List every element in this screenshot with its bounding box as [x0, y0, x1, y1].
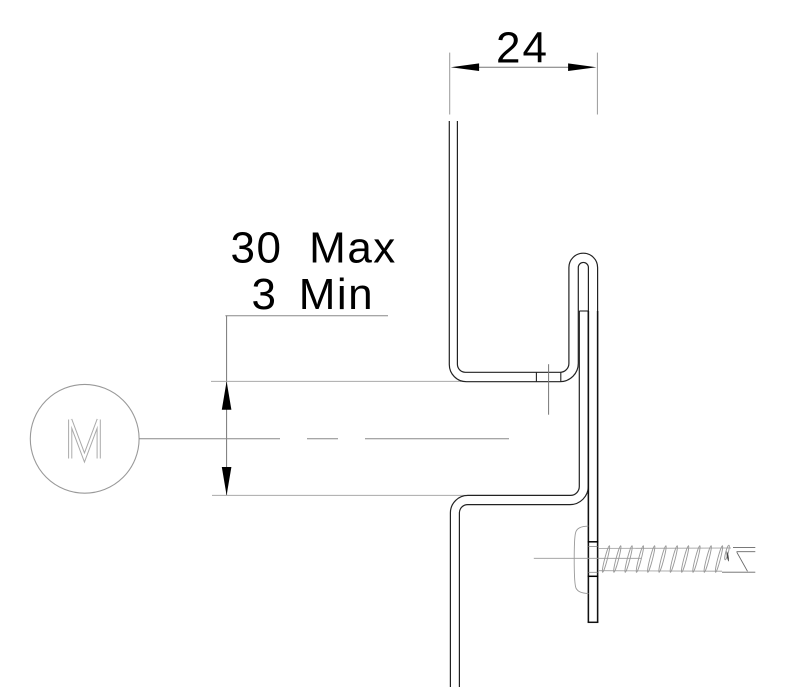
svg-text:30 Max: 30 Max	[231, 224, 397, 273]
svg-text:24: 24	[496, 23, 549, 72]
svg-text:3 Min: 3 Min	[252, 270, 375, 319]
